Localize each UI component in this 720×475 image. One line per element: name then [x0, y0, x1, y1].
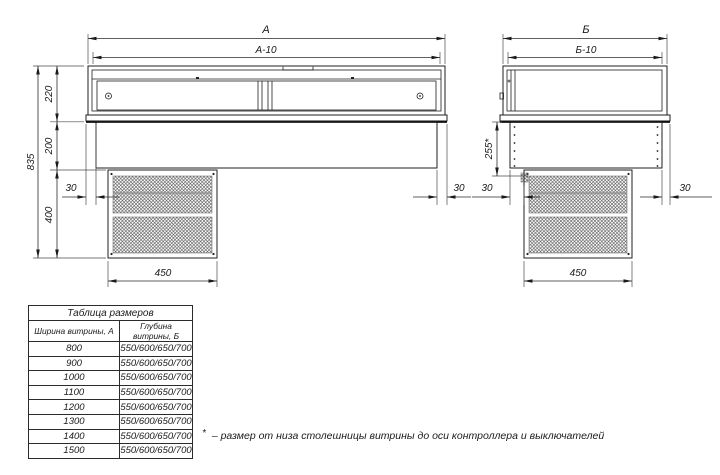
dim-depth-B10: Б-10	[508, 45, 662, 64]
depth-b-value: 550/600/650/700	[120, 400, 193, 415]
size-table-title: Таблица размеров	[29, 306, 193, 321]
dim-30-right-label: 30	[453, 183, 465, 194]
technical-drawing-page: А А-10 835 220 200 400	[0, 0, 720, 475]
dim-base-height-200: 200	[44, 122, 106, 170]
table-row: 1300550/600/650/700	[29, 414, 193, 429]
dim-B10-label: Б-10	[576, 45, 597, 56]
col-header-width: Ширина витрины, А	[29, 321, 120, 342]
side-condensing-unit	[521, 170, 632, 258]
table-row: 900550/600/650/700	[29, 356, 193, 371]
dim-depth-B: Б	[503, 24, 667, 64]
dim-220-label: 220	[44, 85, 55, 103]
dim-unit-width-450: 450	[524, 261, 632, 287]
width-a-value: 1200	[29, 400, 120, 415]
width-a-value: 1000	[29, 371, 120, 386]
dim-case-height-220: 220	[44, 66, 84, 122]
lock-icon	[417, 93, 423, 99]
table-row: 1200550/600/650/700	[29, 400, 193, 415]
width-a-value: 1400	[29, 429, 120, 444]
size-table-body: 800550/600/650/700900550/600/650/7001000…	[29, 342, 193, 459]
dim-unit-height-400: 400	[44, 170, 57, 258]
dim-width-A: А	[88, 24, 445, 64]
depth-b-value: 550/600/650/700	[120, 342, 193, 357]
side-case	[500, 66, 667, 115]
depth-b-value: 550/600/650/700	[120, 356, 193, 371]
dim-total-height-835: 835	[26, 66, 106, 258]
dim-835-label: 835	[26, 153, 37, 170]
screw-row	[514, 126, 659, 167]
table-row: 800550/600/650/700	[29, 342, 193, 357]
table-row: 1000550/600/650/700	[29, 371, 193, 386]
depth-b-value: 550/600/650/700	[120, 385, 193, 400]
side-countertop	[500, 115, 670, 122]
depth-b-value: 550/600/650/700	[120, 414, 193, 429]
size-table: Таблица размеров Ширина витрины, А Глуби…	[28, 305, 193, 459]
depth-b-value: 550/600/650/700	[120, 371, 193, 386]
front-countertop	[86, 115, 447, 122]
plus-mark	[508, 80, 511, 83]
vent-grille	[529, 194, 627, 214]
dim-offset-30-right: 30	[640, 124, 712, 205]
dim-offset-30-right: 30	[413, 124, 471, 205]
dim-offset-30-left: 30	[62, 124, 119, 205]
width-a-value: 800	[29, 342, 120, 357]
dim-400-label: 400	[44, 206, 55, 223]
controller-box	[521, 173, 528, 182]
front-view: А А-10 835 220 200 400	[26, 24, 471, 287]
vent-grille	[113, 194, 212, 214]
depth-b-value: 550/600/650/700	[120, 429, 193, 444]
vent-grille	[529, 217, 627, 253]
vent-grille	[529, 176, 627, 193]
table-row: 1500550/600/650/700	[29, 444, 193, 459]
table-row: 1400550/600/650/700	[29, 429, 193, 444]
dim-200-label: 200	[44, 137, 55, 155]
dim-450-label: 450	[155, 268, 172, 279]
dim-30-left-label: 30	[65, 183, 77, 194]
footnote: * – размер от низа столешницы витрины до…	[202, 430, 604, 442]
sliding-doors	[97, 81, 436, 110]
dim-B-label: Б	[582, 24, 589, 36]
dim-255-label: 255*	[484, 138, 495, 161]
footnote-marker: *	[202, 428, 206, 439]
vent-grille	[113, 176, 212, 193]
dim-width-A10: А-10	[93, 45, 440, 64]
depth-b-value: 550/600/650/700	[120, 444, 193, 459]
dim-A10-label: А-10	[254, 45, 277, 56]
top-recess	[283, 67, 313, 70]
front-condensing-unit	[108, 170, 217, 258]
side-base	[510, 122, 662, 168]
side-view: Б Б-10 255* 30 30	[472, 24, 712, 287]
width-a-value: 1100	[29, 385, 120, 400]
dim-30-left-label: 30	[481, 183, 493, 194]
front-base	[96, 122, 437, 168]
width-a-value: 900	[29, 356, 120, 371]
dim-450-label: 450	[570, 268, 587, 279]
footnote-text: – размер от низа столешницы витрины до о…	[212, 430, 604, 442]
table-row: 1100550/600/650/700	[29, 385, 193, 400]
front-case	[88, 66, 445, 115]
dim-unit-width-450: 450	[108, 261, 217, 287]
col-header-depth: Глубина витрины, Б	[120, 321, 193, 342]
width-a-value: 1500	[29, 444, 120, 459]
dim-A-label: А	[261, 24, 269, 36]
width-a-value: 1300	[29, 414, 120, 429]
lock-icon	[106, 93, 112, 99]
vent-grille	[113, 217, 212, 253]
dim-30-right-label: 30	[679, 183, 691, 194]
